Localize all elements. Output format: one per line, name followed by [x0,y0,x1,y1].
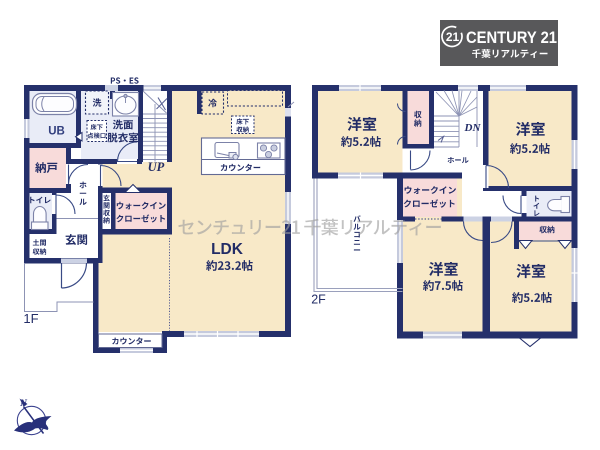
svg-text:CENTURY 21: CENTURY 21 [466,29,557,47]
svg-text:UB: UB [48,126,65,138]
svg-text:LDK: LDK [211,241,244,258]
svg-text:2F: 2F [311,293,326,307]
svg-text:21: 21 [446,30,460,44]
svg-text:DN: DN [464,122,482,134]
svg-text:N: N [19,399,28,409]
svg-text:UP: UP [148,160,165,174]
svg-text:1F: 1F [23,311,38,326]
